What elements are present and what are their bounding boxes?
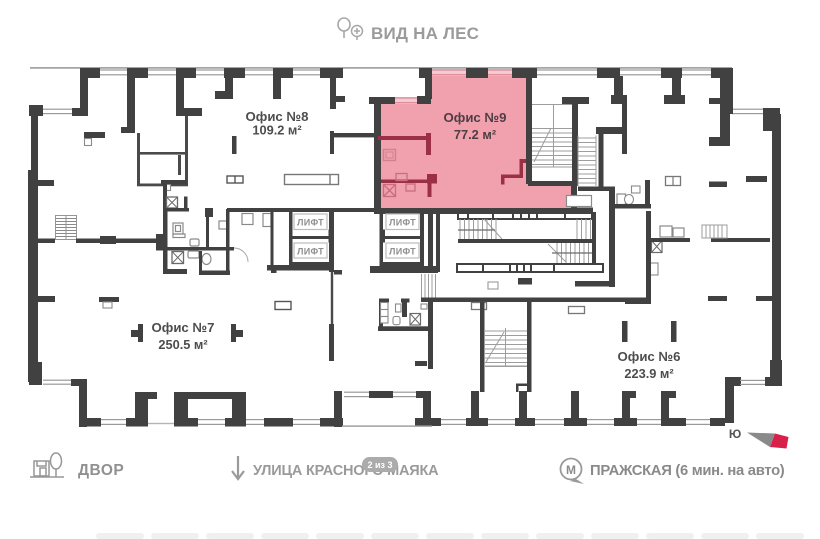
svg-text:ПРАЖСКАЯ (6 мин. на авто): ПРАЖСКАЯ (6 мин. на авто)	[590, 463, 785, 479]
svg-text:77.2 м²: 77.2 м²	[454, 127, 496, 142]
svg-text:Офис №9: Офис №9	[444, 110, 507, 125]
svg-text:109.2 м²: 109.2 м²	[252, 123, 301, 138]
svg-text:Офис №6: Офис №6	[618, 349, 681, 364]
svg-text:ДВОР: ДВОР	[78, 462, 124, 479]
svg-text:ЛИФТ: ЛИФТ	[297, 218, 324, 228]
svg-text:ВИД НА ЛЕС: ВИД НА ЛЕС	[371, 24, 479, 43]
svg-text:250.5 м²: 250.5 м²	[158, 337, 207, 352]
svg-text:ЛИФТ: ЛИФТ	[389, 218, 416, 228]
svg-text:М: М	[566, 463, 576, 477]
svg-text:УЛИЦА КРАСНОГО МАЯКА: УЛИЦА КРАСНОГО МАЯКА	[253, 463, 439, 479]
svg-text:2 из 3: 2 из 3	[367, 460, 392, 470]
svg-text:Ю: Ю	[729, 427, 741, 441]
svg-text:ЛИФТ: ЛИФТ	[389, 247, 416, 257]
svg-text:223.9 м²: 223.9 м²	[624, 366, 673, 381]
svg-text:Офис №7: Офис №7	[152, 320, 215, 335]
svg-text:ЛИФТ: ЛИФТ	[297, 247, 324, 257]
